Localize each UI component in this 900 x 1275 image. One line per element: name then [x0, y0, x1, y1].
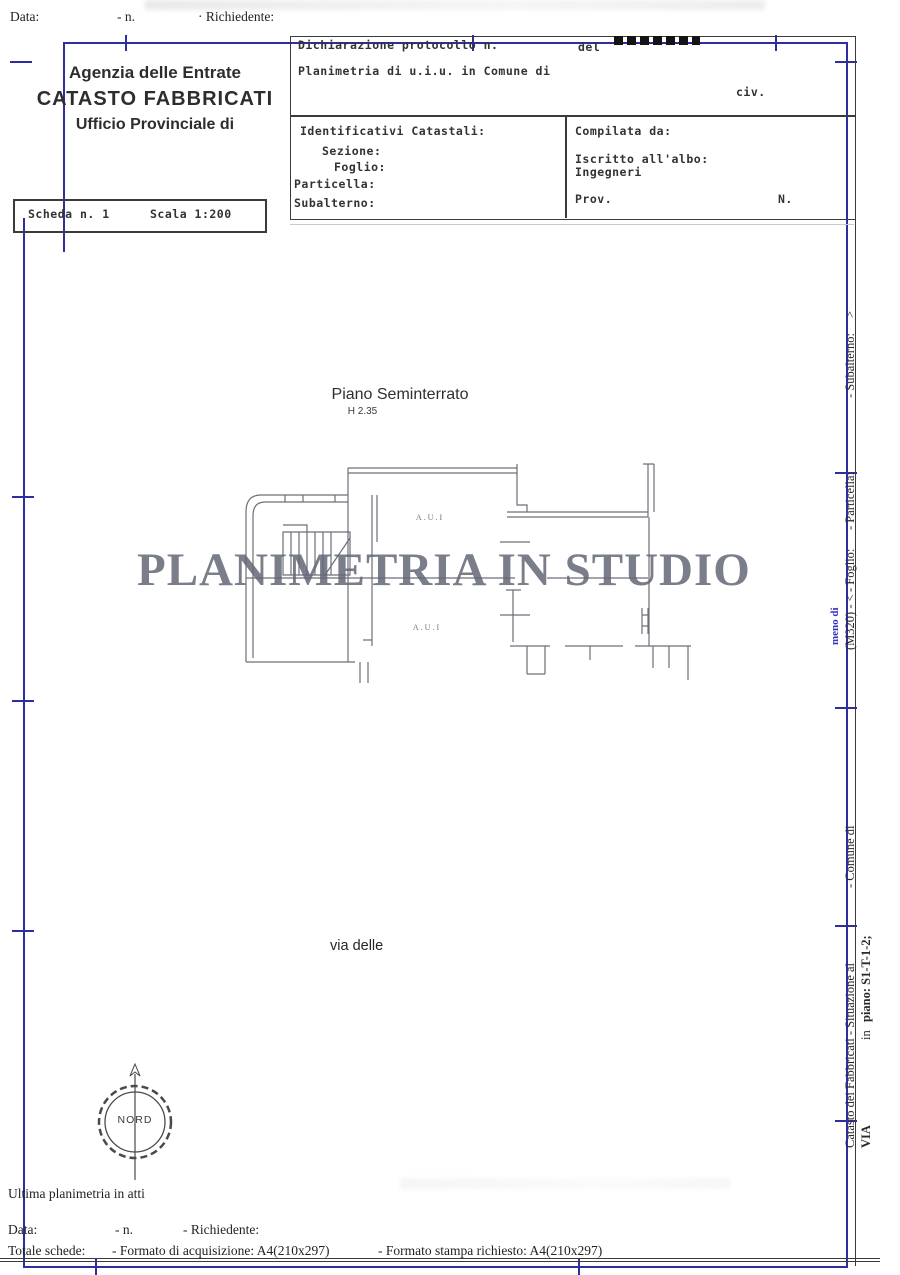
scheda-scale: Scala 1:200 [150, 207, 232, 221]
footer-totale: Totale schede: [8, 1243, 85, 1259]
sidebar-blue-note: meno di [828, 607, 843, 645]
sidebar-foglio: - Foglio: [843, 549, 858, 592]
compilata-title: Compilata da: [575, 124, 672, 138]
declaration-planimetria: Planimetria di u.i.u. in Comune di [298, 64, 550, 78]
agency-line3: Ufficio Provinciale di [40, 116, 270, 134]
declaration-del: del [578, 40, 600, 54]
catastali-subalterno: Subalterno: [294, 196, 376, 210]
tick-right-3 [835, 925, 857, 927]
footer-n: - n. [115, 1222, 133, 1238]
sidebar-arrow: > [843, 311, 858, 318]
agency-line2: CATASTO FABBRICATI [30, 88, 280, 111]
declaration-protocol: Dichiarazione protocollo n. [298, 38, 498, 52]
sidebar-via: VIA [859, 1125, 874, 1148]
footer-stampa: - Formato stampa richiesto: A4(210x297) [378, 1243, 602, 1259]
compilata-n: N. [778, 192, 793, 206]
catastali-particella: Particella: [294, 177, 376, 191]
catastali-sezione: Sezione: [322, 144, 381, 158]
sidebar-particella: - Particella: [843, 472, 858, 530]
floor-height: H 2.35 [280, 406, 445, 417]
catastali-title: Identificativi Catastali: [300, 124, 486, 138]
footer-rule-1 [0, 1258, 880, 1259]
frame-bottom [23, 1266, 848, 1268]
box-shadow-line [290, 224, 854, 225]
top-richiedente-label: · Richiedente: [198, 9, 274, 25]
floor-title: Piano Seminterrato [280, 386, 520, 404]
room-label-top: A.U.I [405, 513, 455, 522]
scheda-number: Scheda n. 1 [28, 207, 110, 221]
compilata-albo1: Iscritto all'albo: [575, 152, 709, 166]
sidebar-catasto: Catasto dei Fabbricati - Situazione al [843, 963, 858, 1148]
sidebar-subalterno: - Subalterno: [843, 333, 858, 398]
declaration-civ: civ. [736, 85, 766, 99]
room-label-bottom: A.U.I [402, 623, 452, 632]
tick-left-3 [12, 930, 34, 932]
sidebar-piano: piano: S1-T-1-2; [859, 935, 874, 1022]
compilata-prov: Prov. [575, 192, 612, 206]
street-label: via delle [330, 938, 383, 954]
tick-left-1 [12, 496, 34, 498]
footer-rule-2 [0, 1261, 880, 1262]
watermark-text: PLANIMETRIA IN STUDIO [137, 543, 751, 597]
scan-smudge-footer [400, 1178, 730, 1189]
compass-nord-label: NORD [85, 1114, 185, 1126]
tick-right-2 [835, 707, 857, 709]
tick-left-2 [12, 700, 34, 702]
catastali-divider [565, 115, 567, 218]
catastali-foglio: Foglio: [334, 160, 386, 174]
tick-top-1 [125, 35, 127, 51]
redacted-protocol-date [614, 36, 700, 45]
agency-line1: Agenzia delle Entrate [40, 63, 270, 83]
footer-acquisizione: - Formato di acquisizione: A4(210x297) [112, 1243, 329, 1259]
frame-left [23, 218, 25, 1268]
footer-ultima: Ultima planimetria in atti [8, 1186, 145, 1202]
sidebar-m320: (M320) - < [843, 594, 858, 650]
top-n-label: - n. [117, 9, 135, 25]
compilata-albo2: Ingegneri [575, 165, 642, 179]
sidebar-comune: - Comune di [843, 826, 858, 889]
footer-richiedente: - Richiedente: [183, 1222, 259, 1238]
sidebar-in: in [859, 1030, 874, 1040]
footer-data: Data: [8, 1222, 37, 1238]
top-data-label: Data: [10, 9, 39, 25]
cadastral-document-page: Data: - n. · Richiedente: Agenzia delle … [0, 0, 900, 1275]
tick-left-0 [10, 61, 32, 63]
